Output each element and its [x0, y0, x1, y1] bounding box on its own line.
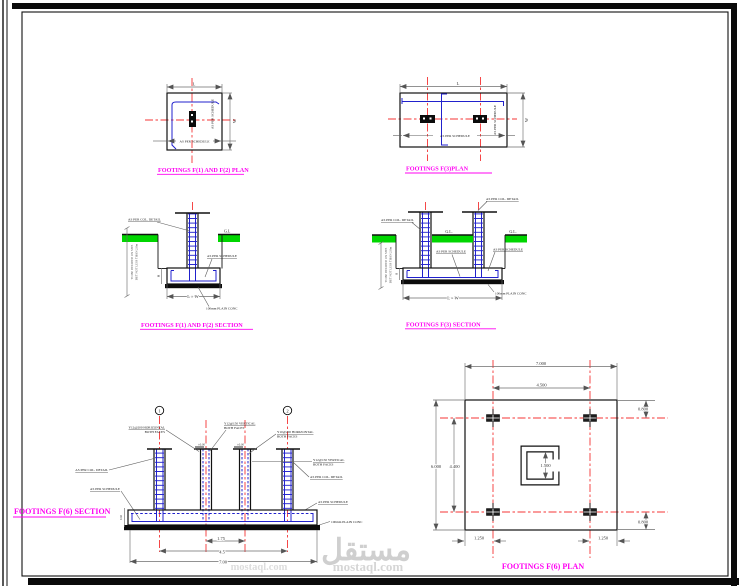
dim-bottom-right: 1.250: [598, 536, 609, 541]
col-detail-label: AS PER COL. DETAIL: [128, 218, 161, 222]
ground-right: [505, 235, 527, 243]
dim-left-overall: 6.000: [431, 464, 442, 469]
sheet-frame: [3, 0, 739, 586]
ground-level-label-2: G.L.: [509, 229, 516, 234]
schedule-label-v: AS PER SCHEDULE: [493, 105, 497, 135]
footing-rebar: [407, 271, 498, 278]
footing-rebar: [171, 271, 216, 282]
cad-canvas: مستقل mostaql.com mostaql.com L W AS PER…: [0, 0, 739, 586]
schedule-label-right: AS PER SCHEDULE: [493, 248, 523, 252]
rebar-label-left-1: Y12@200 HORIZONTAL: [129, 426, 165, 430]
dim-width: W: [232, 118, 237, 123]
rebar-label-far-right-2: BOTH FACES: [313, 463, 333, 467]
dim-right-bottom: 0.800: [638, 520, 649, 525]
ground-left: [122, 235, 158, 243]
frame-right-bar: [731, 3, 737, 586]
dim-mid: 4.5: [219, 549, 225, 554]
footing-outline: [403, 268, 502, 280]
fig-title: FOOTINGS F(3) SECTION: [406, 322, 481, 329]
ground-level-label: G.L: [224, 229, 231, 234]
fig-f3-section: G.L. G.L. H TO BE DECIDED ON SITE BUT NO…: [372, 197, 527, 329]
fig-title: FOOTINGS F(1) AND F(2) PLAN: [158, 167, 249, 174]
watermark-latin-2: mostaql.com: [231, 562, 288, 573]
plain-concrete: [124, 525, 320, 530]
rebar-line-top: [402, 98, 504, 106]
ground-level-label-1: G.L.: [445, 229, 452, 234]
column: [189, 111, 196, 127]
frame-top-bar: [12, 3, 735, 9]
ground-mid: [432, 235, 473, 243]
site-note-line2: BUT NOT LESS THAN 2.0m: [389, 246, 393, 283]
column-marker-1: [487, 409, 500, 427]
fig-f12-plan: L W AS PER SCHEDULE AS PER SCHEDULE FOOT…: [145, 78, 249, 174]
column-marker-3: [487, 503, 500, 521]
dim-bottom-left: 1.250: [474, 536, 485, 541]
footing-outline: [167, 268, 220, 284]
site-note-line1: TO BE DECIDED ON SITE: [130, 245, 134, 280]
fig-title: FOOTINGS F(3)PLAN: [406, 166, 469, 173]
ground-left: [372, 235, 396, 243]
frame-inner-border: [22, 12, 728, 576]
dim-width: W: [524, 117, 529, 122]
dim-lw: L × W: [447, 296, 459, 301]
plain-concrete: [401, 280, 504, 284]
fig-f6-section: 1 2 ±0.00 ±0.00 Y12: [13, 406, 363, 564]
rebar-label-mid-1: Y12@150 VERTICAL: [224, 422, 255, 426]
watermark-latin: mostaql.com: [333, 559, 404, 574]
fig-f3-plan: L W AS PER SCHEDULE AS PER SCHEDULE FOOT…: [388, 77, 529, 173]
schedule-label-v: AS PER SCHEDULE: [211, 99, 215, 129]
drawing-sheet: مستقل mostaql.com mostaql.com L W AS PER…: [0, 0, 739, 586]
col-detail-label-right: AS PER COL. DETAIL: [486, 197, 519, 201]
schedule-label-left: AS PER SCHEDULE: [90, 487, 120, 491]
column-1: [420, 115, 435, 123]
plain-conc-label: 100mm PLAIN CONC: [206, 307, 238, 311]
dim-depth: H: [395, 272, 399, 275]
schedule-label: AS PER SCHEDULE: [207, 254, 237, 258]
dim-core: 1.500: [540, 463, 551, 468]
schedule-label-mid: AS PER SCHEDULE: [436, 250, 466, 254]
fig-f12-section: G.L H TO BE DECIDED ON SITE BUT NOT LESS…: [122, 202, 253, 329]
dim-depth: 0.60: [119, 514, 123, 520]
rebar-label-right-1: Y10@200 HORIZONTAL: [277, 430, 313, 434]
col-detail-label-right: AS PER COL. DETAIL: [310, 475, 343, 479]
site-note-line1: TO BE DECIDED ON SITE: [384, 248, 388, 283]
dim-length: L: [193, 82, 196, 87]
col-detail-label-left: AS PER COL. DETAIL: [381, 218, 414, 222]
dim-inner: 1.75: [217, 536, 226, 541]
fig-f6-plan: 1.500 7.000 4.500 6.000 4.400 0.800 0.80…: [431, 360, 668, 571]
schedule-label-h: AS PER SCHEDULE: [440, 134, 470, 138]
dim-top-overall: 7.000: [536, 361, 547, 366]
level-label-1: ±0.00: [198, 443, 205, 447]
rebar-label-mid-2: BOTH FACES: [224, 426, 244, 430]
dim-depth: H: [157, 274, 161, 277]
dim-left-inner: 4.400: [449, 464, 460, 469]
ground-right: [218, 235, 240, 243]
dim-right-top: 0.800: [638, 407, 649, 412]
rebar-label-right-2: BOTH FACES: [277, 435, 297, 439]
column-marker-4: [584, 503, 597, 521]
rebar-label-left-2: BOTH FACES: [145, 430, 165, 434]
col-detail-label-left: AS PER COL. DETAIL: [75, 468, 108, 472]
watermark: مستقل mostaql.com mostaql.com: [231, 534, 411, 574]
dim-length: L: [457, 81, 460, 86]
column-2: [473, 115, 487, 123]
column-marker-2: [584, 409, 597, 427]
plain-conc-label: 100mm PLAIN CONC: [331, 520, 363, 524]
plain-conc-label: 100mm PLAIN CONC: [495, 292, 527, 296]
fig-title: FOOTINGS F(6) SECTION: [14, 507, 111, 516]
site-note-line2: BUT NOT LESS THAN 2.0m: [135, 243, 139, 280]
schedule-label-right: AS PER SCHEDULE: [318, 500, 348, 504]
rebar-label-far-right-1: Y12@150 VERTICAL: [313, 458, 344, 462]
dim-overall: 7.00: [219, 560, 228, 565]
plain-concrete: [165, 284, 222, 288]
fig-title: FOOTINGS F(1) AND F(2) SECTION: [141, 322, 243, 329]
fig-title: FOOTINGS F(6) PLAN: [502, 562, 584, 571]
dim-top-inner: 4.500: [536, 383, 547, 388]
dim-lw: L × W: [187, 294, 199, 299]
frame-bottom-bar: [28, 578, 739, 585]
schedule-label-h: AS PER SCHEDULE: [180, 139, 210, 143]
level-label-2: ±0.00: [237, 443, 244, 447]
